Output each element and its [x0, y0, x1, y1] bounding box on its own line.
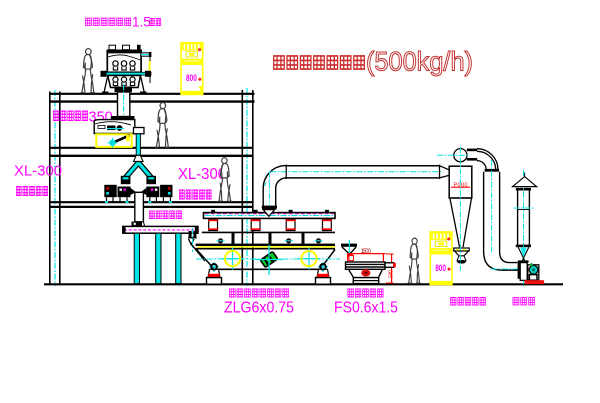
svg-text:XL-300: XL-300	[178, 166, 226, 183]
svg-text:FS0.6x1.5: FS0.6x1.5	[334, 300, 398, 317]
svg-text:1.5: 1.5	[132, 15, 151, 30]
svg-text:1500: 1500	[361, 249, 372, 255]
svg-text:ZLG6x0.75: ZLG6x0.75	[224, 300, 294, 317]
svg-text:800: 800	[435, 262, 446, 273]
svg-text:800: 800	[186, 73, 197, 83]
svg-text:XL-300: XL-300	[14, 163, 62, 180]
svg-text:(500kg/h): (500kg/h)	[366, 47, 473, 77]
svg-text:540: 540	[389, 270, 395, 278]
